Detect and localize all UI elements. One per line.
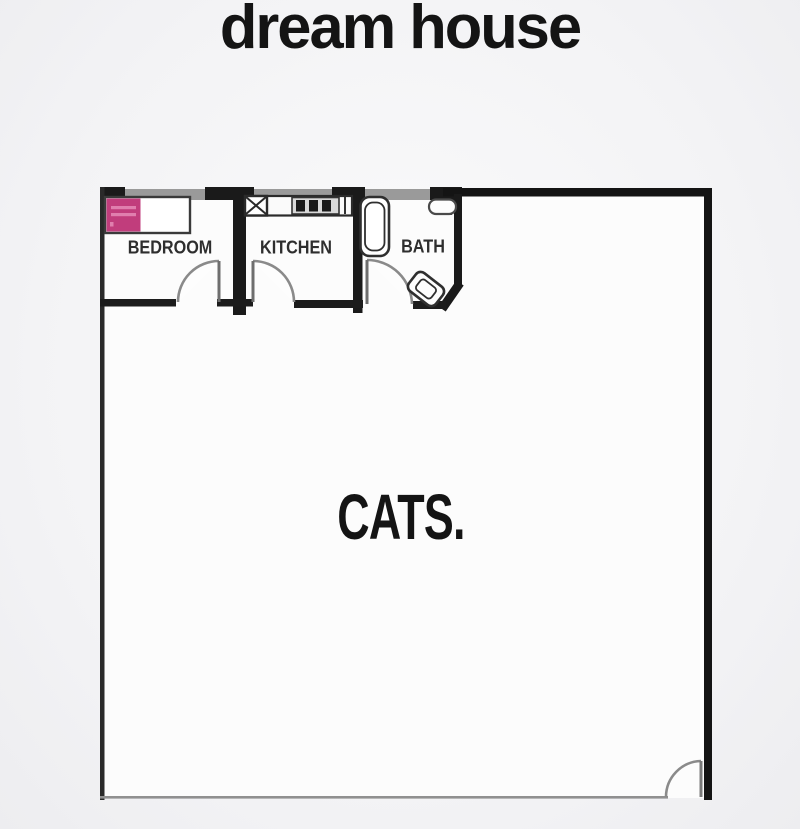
bedroom-label: BEDROOM	[128, 238, 213, 259]
small-rooms-bottom-wall-segment	[100, 299, 176, 307]
floor-plan-drawing	[0, 0, 800, 829]
small-rooms-bottom-wall-segment	[217, 299, 253, 307]
bathtub-icon	[361, 197, 390, 256]
bottom-wall	[100, 796, 668, 799]
big-room-top-wall	[443, 188, 712, 197]
kitchen-sink-icon	[245, 196, 267, 216]
small-rooms-bottom-wall-segment	[294, 300, 363, 308]
bed-icon	[105, 197, 190, 233]
stove-icon	[292, 197, 345, 214]
bath-sink-icon	[429, 200, 456, 215]
bath-label: BATH	[401, 237, 445, 258]
kitchen-counter	[245, 196, 352, 216]
left-wall	[100, 187, 105, 800]
kitchen-label: KITCHEN	[260, 238, 332, 259]
right-wall	[704, 188, 712, 800]
cats-room-label: CATS.	[337, 480, 465, 554]
